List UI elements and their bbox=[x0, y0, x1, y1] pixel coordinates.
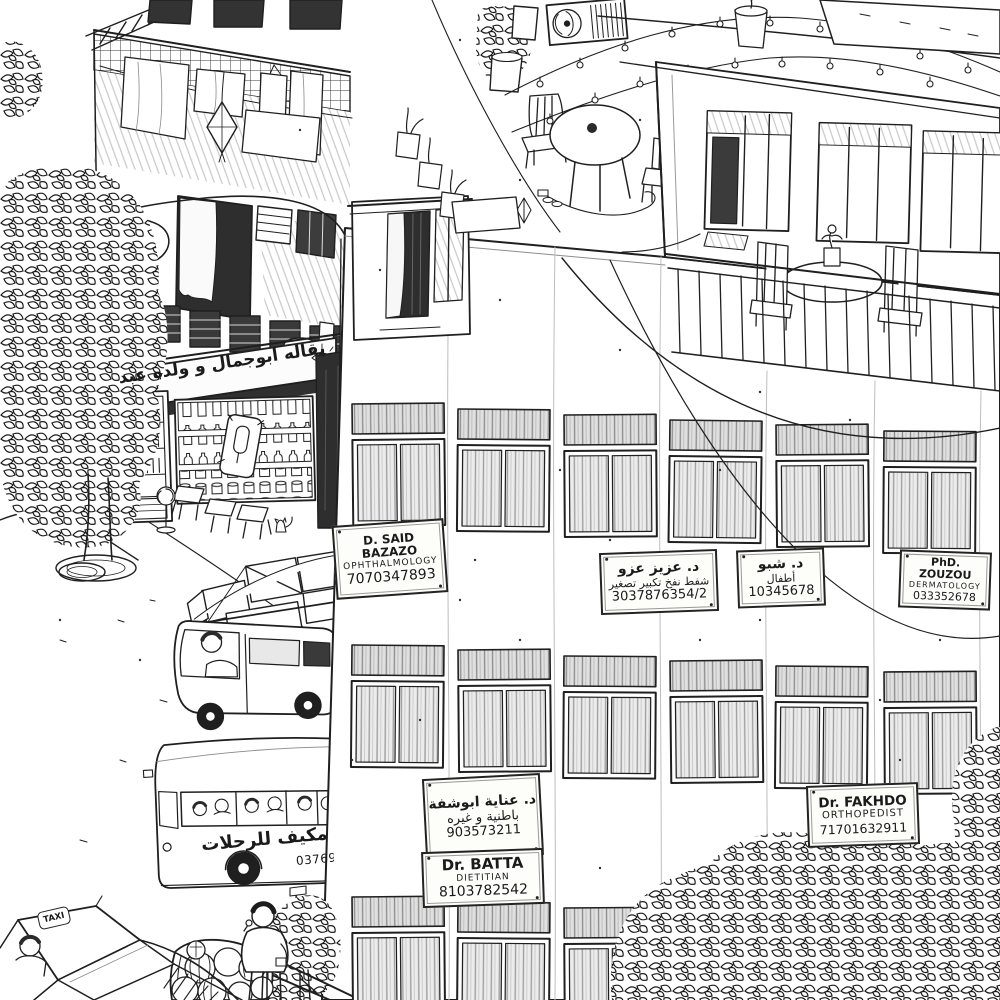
cat bbox=[275, 517, 292, 532]
doctor-sign-fakhdo: Dr. FAKHDO ORTHOPEDIST 71701632911 bbox=[806, 782, 920, 848]
doctor-name: PhD. ZOUZOU bbox=[903, 556, 988, 582]
window-bay bbox=[351, 645, 444, 768]
louver-vent bbox=[256, 206, 292, 244]
phone-hand bbox=[246, 920, 252, 926]
window-bay bbox=[776, 424, 869, 547]
low-table bbox=[452, 197, 520, 233]
slippers bbox=[543, 198, 562, 207]
corner-foliage bbox=[0, 42, 43, 120]
window-bay bbox=[563, 656, 656, 779]
window-bay bbox=[457, 902, 550, 1000]
dark-doorway-curtain bbox=[176, 196, 252, 320]
window-bay bbox=[669, 420, 762, 543]
doctor-phone: 033352678 bbox=[902, 589, 986, 603]
doctor-sign-batta: Dr. BATTA DIETITIAN 8103782542 bbox=[421, 848, 545, 908]
doctor-phone: 8103782542 bbox=[426, 882, 540, 901]
doctor-sign-shibo: د. شبو أطفال 10345678 bbox=[736, 547, 826, 608]
window-bay bbox=[883, 431, 976, 554]
rooftop-awning bbox=[820, 0, 1000, 54]
window-bay bbox=[670, 660, 763, 783]
paper-lanterns bbox=[517, 198, 681, 229]
doctor-sign-zouzou: PhD. ZOUZOU DERMATOLOGY 033352678 bbox=[898, 549, 992, 610]
round-table bbox=[550, 105, 640, 211]
window-bay bbox=[564, 414, 657, 537]
window-bay bbox=[457, 409, 550, 532]
ac-unit bbox=[546, 0, 627, 45]
window-bay bbox=[458, 649, 551, 772]
rooftop-pot bbox=[735, 0, 767, 48]
illustration-street-scene: D. SAID BAZAZO OPHTHALMOLOGY 7070347893 … bbox=[0, 0, 1000, 1000]
ashtray bbox=[587, 123, 597, 133]
doctor-phone: 71701632911 bbox=[811, 820, 915, 837]
window-bay bbox=[352, 403, 445, 526]
window-bay bbox=[352, 896, 445, 1000]
doctor-sign-bazazo: D. SAID BAZAZO OPHTHALMOLOGY 7070347893 bbox=[332, 518, 449, 600]
doctor-phone: 3037876354/2 bbox=[604, 587, 714, 604]
window-bay bbox=[775, 666, 868, 789]
minibus bbox=[142, 733, 345, 894]
doctor-sign-aziz: د. عزيز عزو شفط نفخ تكبير تصغير 30378763… bbox=[599, 549, 719, 615]
doctor-phone: 10345678 bbox=[741, 584, 821, 600]
doctor-name: د. شبو bbox=[740, 556, 820, 573]
plant-pots bbox=[396, 6, 538, 219]
moving-van bbox=[169, 551, 348, 731]
